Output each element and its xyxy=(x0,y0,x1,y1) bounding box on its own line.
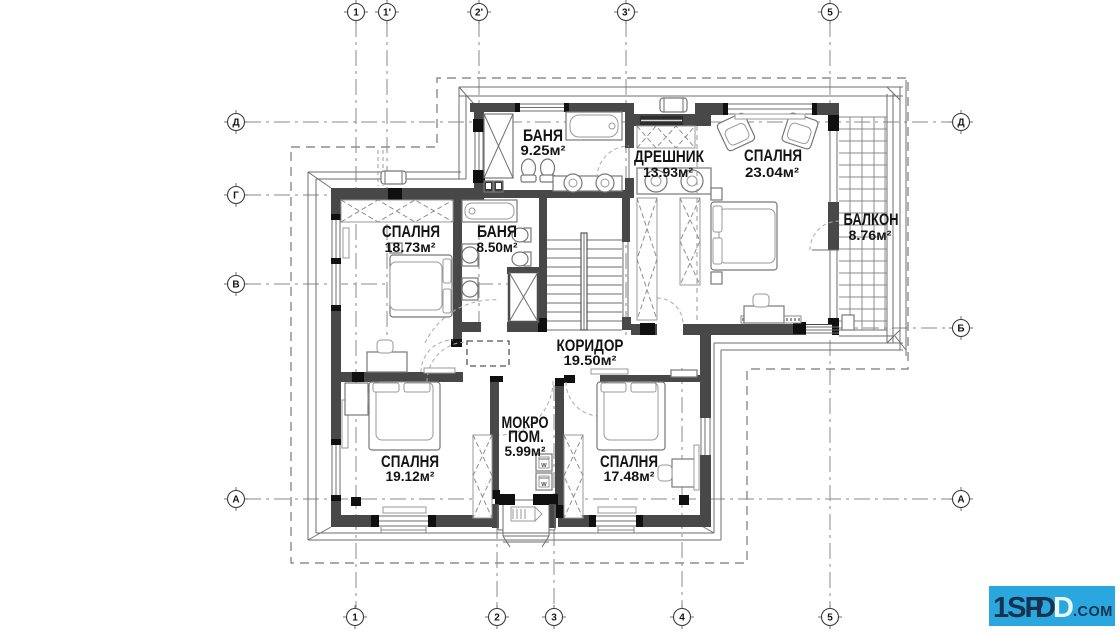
svg-text:8.76м²: 8.76м² xyxy=(849,227,892,243)
svg-text:2: 2 xyxy=(494,613,500,624)
svg-text:w: w xyxy=(540,462,547,469)
svg-text:D: D xyxy=(1053,592,1074,624)
svg-text:2': 2' xyxy=(475,8,483,19)
svg-text:1: 1 xyxy=(352,613,358,624)
svg-text:3: 3 xyxy=(551,613,557,624)
svg-text:5: 5 xyxy=(827,8,833,19)
svg-text:w: w xyxy=(540,481,547,488)
svg-text:Д: Д xyxy=(232,118,239,129)
svg-text:А: А xyxy=(957,495,964,506)
svg-text:23.04м²: 23.04м² xyxy=(745,164,799,180)
svg-text:1': 1' xyxy=(383,8,391,19)
svg-text:5.99м²: 5.99м² xyxy=(505,443,546,459)
svg-text:.COM: .COM xyxy=(1073,604,1113,620)
svg-text:8.50м²: 8.50м² xyxy=(477,239,518,255)
svg-text:Г: Г xyxy=(233,191,239,202)
svg-text:В: В xyxy=(232,280,239,291)
svg-text:Д: Д xyxy=(957,118,964,129)
svg-text:СПАЛНЯ: СПАЛНЯ xyxy=(744,147,802,165)
svg-text:19.50м²: 19.50м² xyxy=(564,352,617,368)
svg-text:Б: Б xyxy=(957,324,964,335)
svg-text:4: 4 xyxy=(679,613,685,624)
svg-text:1: 1 xyxy=(353,8,359,19)
svg-text:13.93м²: 13.93м² xyxy=(643,164,693,180)
svg-text:17.48м²: 17.48м² xyxy=(604,468,655,484)
svg-text:18.73м²: 18.73м² xyxy=(385,239,436,255)
svg-text:5: 5 xyxy=(827,613,833,624)
svg-text:3': 3' xyxy=(622,8,630,19)
svg-text:9.25м²: 9.25м² xyxy=(521,142,566,158)
svg-text:19.12м²: 19.12м² xyxy=(386,468,435,484)
svg-text:А: А xyxy=(232,495,239,506)
